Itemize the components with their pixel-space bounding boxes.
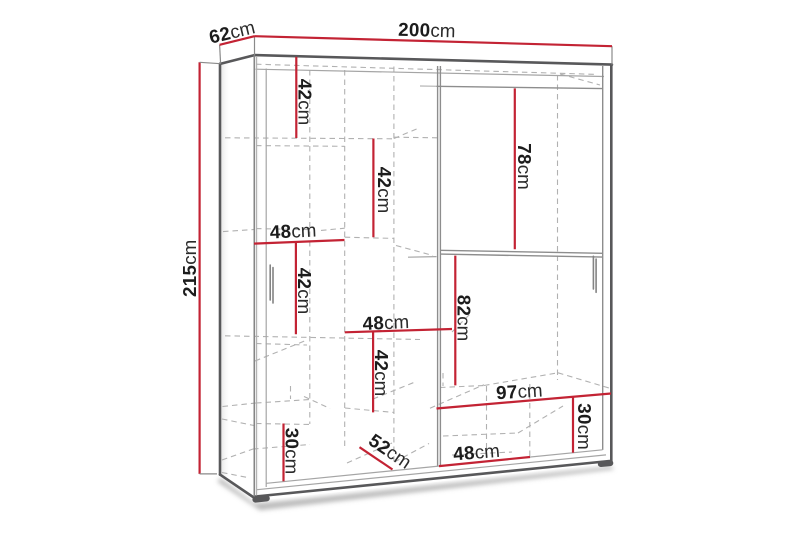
- svg-text:48cm: 48cm: [362, 311, 409, 334]
- svg-text:48cm: 48cm: [269, 220, 316, 243]
- svg-text:42cm: 42cm: [294, 268, 315, 315]
- svg-text:215cm: 215cm: [179, 240, 200, 297]
- svg-text:42cm: 42cm: [371, 350, 392, 397]
- svg-text:48cm: 48cm: [452, 440, 500, 465]
- svg-text:42cm: 42cm: [374, 167, 395, 214]
- svg-text:97cm: 97cm: [495, 379, 543, 403]
- svg-text:30cm: 30cm: [282, 428, 303, 475]
- svg-text:82cm: 82cm: [453, 295, 474, 342]
- svg-text:30cm: 30cm: [574, 403, 595, 450]
- svg-text:200cm: 200cm: [398, 19, 456, 42]
- svg-text:78cm: 78cm: [514, 143, 535, 190]
- svg-text:42cm: 42cm: [295, 79, 316, 126]
